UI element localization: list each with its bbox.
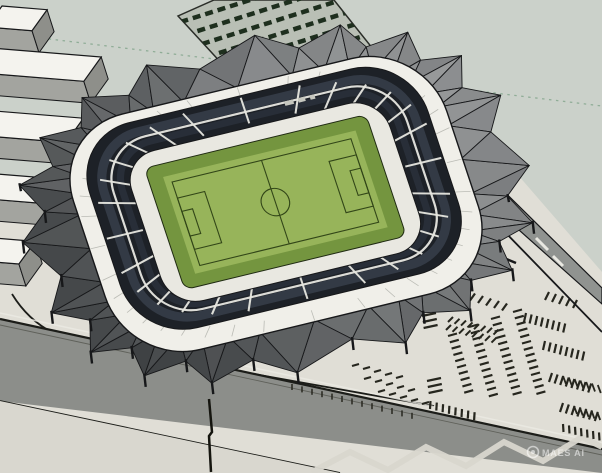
roof-leg: [533, 221, 535, 234]
roof-leg: [470, 309, 472, 322]
roof-leg: [352, 337, 354, 350]
parking-stall-tick: [599, 432, 600, 440]
roof-leg: [19, 183, 21, 191]
parking-stall-tick: [462, 409, 463, 417]
parking-stall-tick: [563, 424, 564, 432]
watermark-logo-dot-icon: [531, 450, 535, 454]
render-canvas: MAES AI: [0, 0, 602, 473]
parking-stall-tick: [587, 430, 588, 438]
parking-stall-tick: [449, 406, 450, 414]
roof-leg: [91, 351, 93, 364]
parking-stall-tick: [455, 407, 456, 415]
roof-leg: [61, 274, 63, 287]
roof-leg: [471, 278, 473, 291]
stadium-model-render: MAES AI: [0, 0, 602, 473]
roof-leg: [499, 240, 501, 253]
roof-leg: [297, 371, 299, 384]
parking-stall-tick: [569, 425, 570, 433]
roof-leg: [423, 311, 425, 324]
roof-leg: [131, 346, 133, 359]
parking-stall-tick: [474, 412, 475, 420]
roof-leg: [23, 240, 25, 253]
parking-stall-tick: [436, 403, 437, 411]
roof-leg: [405, 341, 407, 354]
parking-stall-tick: [430, 401, 431, 409]
roof-leg: [212, 381, 214, 394]
roof-leg: [51, 311, 53, 324]
parking-stall-tick: [593, 431, 594, 439]
watermark-text: MAES AI: [542, 448, 585, 458]
roof-leg: [45, 210, 47, 223]
roof-leg: [507, 194, 509, 202]
roof-leg: [186, 359, 188, 372]
parking-stall-tick: [468, 411, 469, 419]
roof-leg: [253, 358, 255, 371]
roof-leg: [90, 318, 92, 331]
roof-leg: [512, 268, 514, 281]
parking-stall-tick: [443, 404, 444, 412]
parking-stall-tick: [575, 427, 576, 435]
roof-leg: [144, 374, 146, 387]
parking-stall-tick: [581, 428, 582, 436]
